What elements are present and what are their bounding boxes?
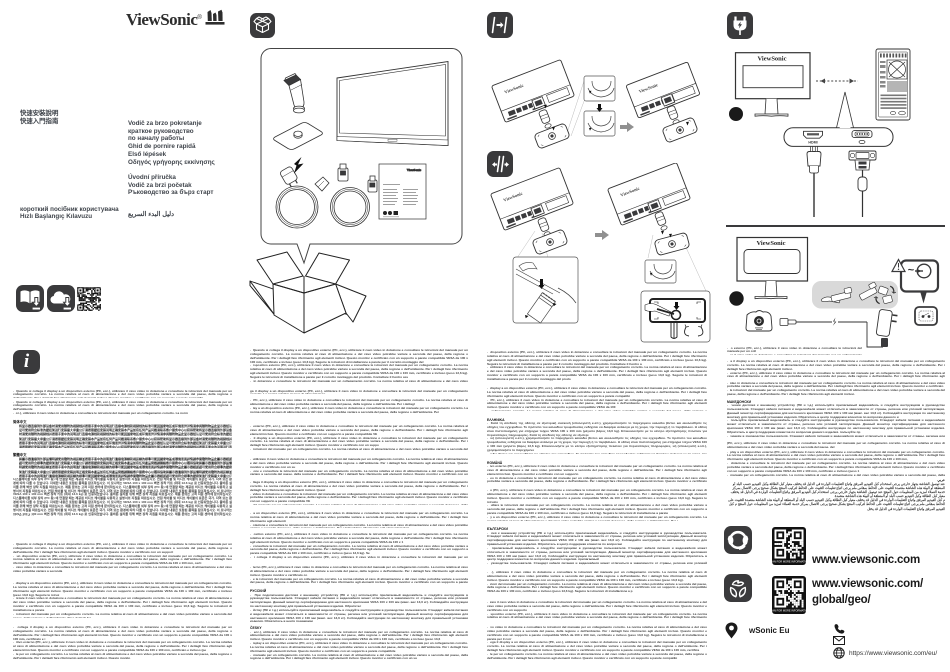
svg-text:ViewSonic: ViewSonic [757,56,786,63]
svg-text:~: ~ [908,265,915,277]
svg-text:ViewSonic: ViewSonic [756,240,785,247]
svg-text:ViewSonic: ViewSonic [407,168,422,172]
svg-text:SCAN FOR MORE INFORMATION: SCAN FOR MORE INFORMATION [772,560,806,564]
svg-text:HDMI: HDMI [808,141,817,145]
svg-text:SCAN FOR MORE INFORMATION: SCAN FOR MORE INFORMATION [772,609,806,613]
